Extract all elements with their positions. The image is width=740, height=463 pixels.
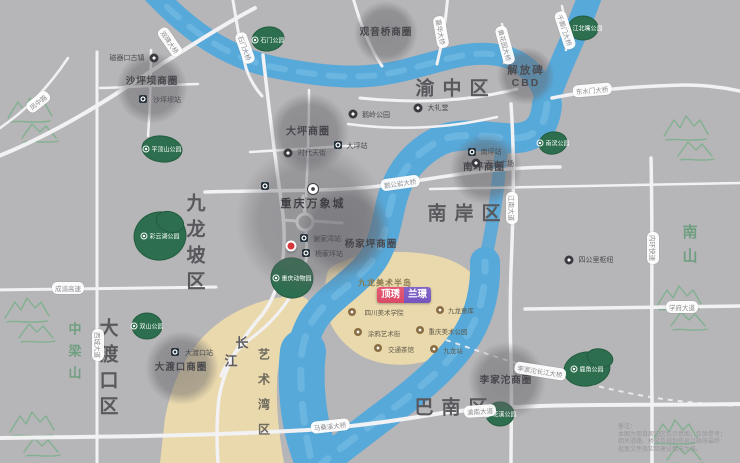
landmark-label-sigongli: 四公里枢纽 [579,255,614,265]
project-name-right: 兰璟 [404,287,431,303]
mixc-mall-icon [307,183,319,195]
park-icon [130,323,137,330]
metro-label-daping: 大坪站 [347,141,368,151]
park-label-caiyunhu: 彩云湖公园 [140,232,179,241]
map-note-line: 本图为项目周边区位示意图，仅供参考； [618,432,734,440]
landmark-label-jiulong-station: 九龙站 [443,345,463,355]
business-circle-label-daping: 大坪商圈 [286,123,330,138]
park-label-zoo: 重庆动物园 [272,274,311,283]
district-label-jiulongpo: 九龙坡区 [181,193,208,297]
mountain-label-nanshan: 南山 [679,224,700,272]
landmark-label-tea-house: 交通茶馆 [388,344,414,354]
park-label-nanbin: 南滨公园 [536,139,569,148]
project-name-left: 顶琇 [377,287,404,303]
landmark-label-times-street: 时代天街 [298,148,326,158]
tea-house-icon [374,344,382,352]
business-circle-label-jiefangbei: 解放碑 [507,63,545,78]
metro-label-nanping: 南坪站 [481,147,502,157]
project-marker-dot [286,241,297,252]
map-note: 备注： 本图为项目周边区位示意图，仅供参考； 相关道路、桥梁及规划信息以政府最终… [618,424,734,454]
metro-station-icon-dadukou [171,348,179,356]
road-label-xicheng: 西城大道 [92,329,104,361]
road-label-xuefu: 学府大道 [666,301,698,313]
road-label-yunan: 渝南大道 [464,404,497,418]
area-label-art-bay: 艺术湾区 [256,348,273,448]
business-circle-label-yangjiaping: 杨家坪商圈 [345,236,398,250]
landmark-label-eling: 鹅岭公园 [362,110,390,120]
landmark-label-jiulongyiku: 九龙意库 [448,305,474,315]
jiulong-station-icon [430,345,438,353]
metro-station-icon-shapingba [139,95,147,103]
graffiti-street-icon [354,328,362,336]
metro-station-icon-nanping [468,148,476,156]
sigongli-hub-poi-icon [565,256,574,265]
business-circle-label-shapingba: 沙坪坝商圈 [126,73,179,87]
business-circle-label-guanyinqiao: 观音桥商圈 [360,24,413,38]
landmark-label-scfai: 四川美术学院 [365,307,404,317]
park-label-pingdingshan: 平顶山公园 [142,145,181,154]
road-label-neihuan: 内环快速 [647,232,659,264]
jiulongyiku-icon [436,306,444,314]
wanda-plaza-poi-icon [472,159,481,168]
metro-station-icon-daping [334,141,342,149]
metro-station-icon-yangjiaping [302,249,310,257]
road-label-chengyu: 成渝高速 [52,282,84,294]
metro-label-shapingba: 沙坪坝站 [153,95,181,105]
park-icon [272,275,279,282]
times-street-poi-icon [284,149,293,158]
ciqikou-poi-icon [150,54,159,63]
map-canvas: 渝中区 南岸区 巴南区 九龙坡区 大渡口区 中梁山 南山 长 江 艺术湾区 九龙… [0,0,740,463]
district-label-nanan: 南岸区 [427,199,508,226]
river-label-changjiang-2: 江 [224,351,237,370]
park-icon [251,37,258,44]
map-note-line: 备注： [618,424,734,432]
art-park-icon [416,326,424,334]
business-circle-label-jiefangbei-cbd: CBD [512,77,541,89]
metro-label-yangjiaping: 杨家坪站 [315,249,343,259]
river-label-changjiang-1: 长 [235,333,248,352]
mountain-label-zhongliangshan: 中梁山 [65,322,84,388]
landmark-label-graffiti-street: 涂鸦艺术街 [368,328,401,338]
park-icon [536,140,543,147]
landmark-label-dalitang: 大礼堂 [428,103,449,113]
landmark-label-mixc: 重庆万象城 [281,195,346,211]
dalitang-poi-icon [414,104,423,113]
project-name-badge: 顶琇兰璟 [377,287,431,303]
park-icon [570,366,577,373]
metro-label-xiejiawan: 谢家湾站 [313,234,341,244]
park-label-lujiao: 鹿角公园 [570,365,603,374]
landmark-label-wanda: 万达广场 [486,159,514,169]
park-icon [140,233,147,240]
park-label-shimen: 石门公园 [251,36,284,45]
district-label-yuzhong: 渝中区 [415,74,496,101]
road-label-jiangnan: 江南大道 [506,192,518,224]
metro-station-icon-unnamed [261,182,269,190]
park-icon [142,146,149,153]
scfai-icon [348,308,356,316]
park-label-shuangshan: 双山公园 [130,322,163,331]
landmark-label-art-park: 重庆美术公园 [429,326,468,336]
metro-station-icon-xiejiawan [300,234,308,242]
metro-label-dadukou: 大渡口站 [185,348,213,358]
business-circle-label-dadukou: 大渡口商圈 [155,359,208,373]
eling-park-poi-icon [349,110,358,119]
landmark-label-ciqikou: 磁器口古镇 [110,53,145,63]
map-note-line: 相关道路、桥梁及规划信息以政府最终 [618,439,734,447]
map-note-line: 批复文件及实际建设情况为准。 [618,447,734,455]
